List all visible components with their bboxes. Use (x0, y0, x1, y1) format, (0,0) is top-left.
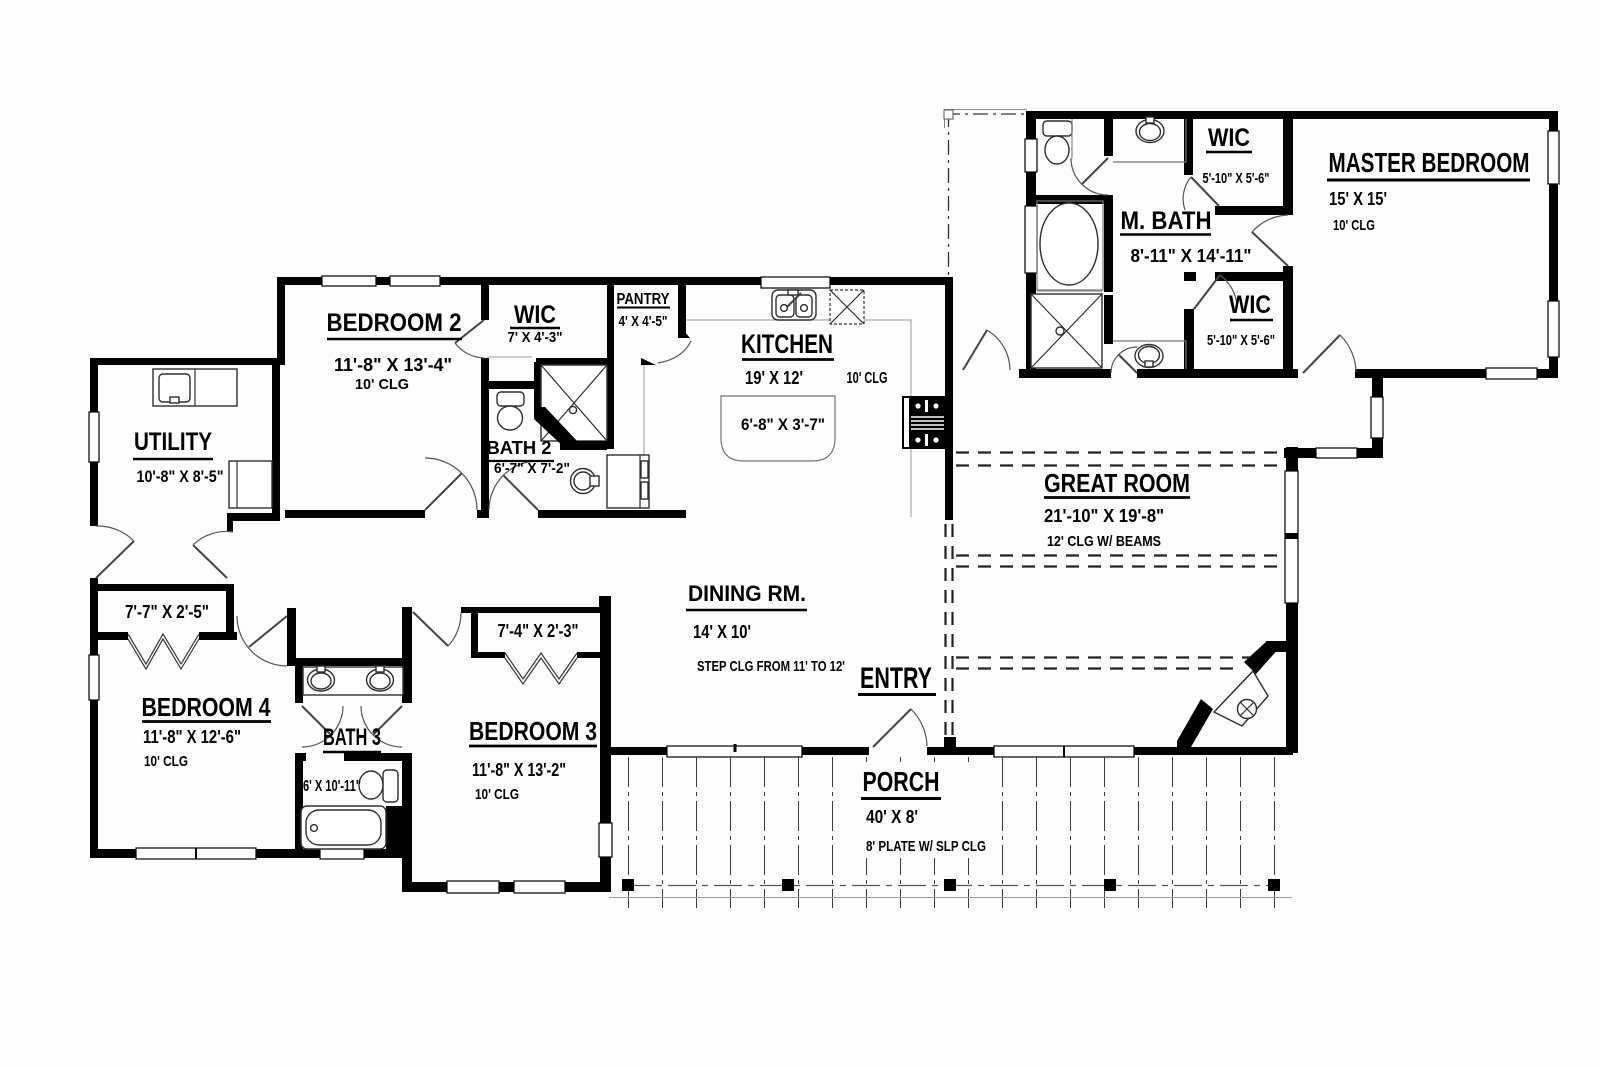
svg-text:WIC: WIC (1208, 124, 1250, 152)
svg-text:UTILITY: UTILITY (134, 428, 212, 456)
svg-text:10' CLG: 10' CLG (847, 370, 888, 387)
svg-text:10' CLG: 10' CLG (475, 786, 519, 803)
svg-text:KITCHEN: KITCHEN (741, 329, 833, 359)
svg-text:14' X 10': 14' X 10' (693, 622, 751, 642)
svg-text:11'-8" X 13'-4": 11'-8" X 13'-4" (334, 355, 452, 375)
svg-text:6'-7" X 7'-2": 6'-7" X 7'-2" (494, 461, 570, 477)
svg-text:40' X 8': 40' X 8' (866, 807, 918, 827)
svg-text:4' X 4'-5": 4' X 4'-5" (619, 314, 668, 330)
svg-text:12' CLG W/ BEAMS: 12' CLG W/ BEAMS (1047, 533, 1161, 550)
svg-text:BATH 3: BATH 3 (323, 724, 381, 751)
svg-text:6' X 10'-11": 6' X 10'-11" (303, 778, 361, 795)
svg-text:19' X 12': 19' X 12' (745, 368, 803, 388)
svg-text:GREAT ROOM: GREAT ROOM (1044, 468, 1190, 498)
svg-text:WIC: WIC (514, 301, 556, 329)
svg-text:11'-8" X 12'-6": 11'-8" X 12'-6" (143, 727, 241, 747)
svg-text:7'-7" X 2'-5": 7'-7" X 2'-5" (125, 602, 209, 622)
svg-text:8' PLATE W/ SLP CLG: 8' PLATE W/ SLP CLG (866, 838, 986, 855)
svg-text:6'-8" X 3'-7": 6'-8" X 3'-7" (741, 415, 825, 434)
svg-text:MASTER BEDROOM: MASTER BEDROOM (1329, 147, 1530, 178)
svg-text:5'-10" X 5'-6": 5'-10" X 5'-6" (1203, 170, 1270, 187)
svg-text:WIC: WIC (1229, 291, 1271, 319)
svg-text:7' X 4'-3": 7' X 4'-3" (508, 329, 563, 346)
svg-text:10'-8" X 8'-5": 10'-8" X 8'-5" (137, 467, 224, 486)
svg-text:10' CLG: 10' CLG (355, 376, 409, 393)
svg-text:10' CLG: 10' CLG (1333, 217, 1375, 234)
svg-text:BEDROOM 3: BEDROOM 3 (469, 716, 597, 746)
svg-text:BEDROOM 4: BEDROOM 4 (142, 692, 271, 722)
svg-text:BATH 2: BATH 2 (487, 438, 552, 458)
svg-text:8'-11" X 14'-11": 8'-11" X 14'-11" (1131, 246, 1252, 266)
svg-text:11'-8" X 13'-2": 11'-8" X 13'-2" (472, 760, 566, 780)
svg-text:STEP CLG FROM 11' TO 12': STEP CLG FROM 11' TO 12' (697, 658, 845, 675)
svg-text:7'-4" X 2'-3": 7'-4" X 2'-3" (498, 621, 579, 641)
svg-text:10' CLG: 10' CLG (144, 753, 188, 770)
svg-text:PANTRY: PANTRY (617, 291, 670, 308)
svg-text:BEDROOM 2: BEDROOM 2 (327, 309, 462, 337)
svg-text:15' X 15': 15' X 15' (1329, 189, 1387, 209)
svg-text:ENTRY: ENTRY (860, 662, 932, 695)
svg-text:21'-10" X 19'-8": 21'-10" X 19'-8" (1044, 506, 1164, 526)
svg-text:PORCH: PORCH (863, 766, 940, 797)
svg-text:DINING RM.: DINING RM. (688, 581, 806, 606)
svg-text:M. BATH: M. BATH (1121, 207, 1212, 235)
svg-text:5'-10" X 5'-6": 5'-10" X 5'-6" (1207, 332, 1275, 349)
